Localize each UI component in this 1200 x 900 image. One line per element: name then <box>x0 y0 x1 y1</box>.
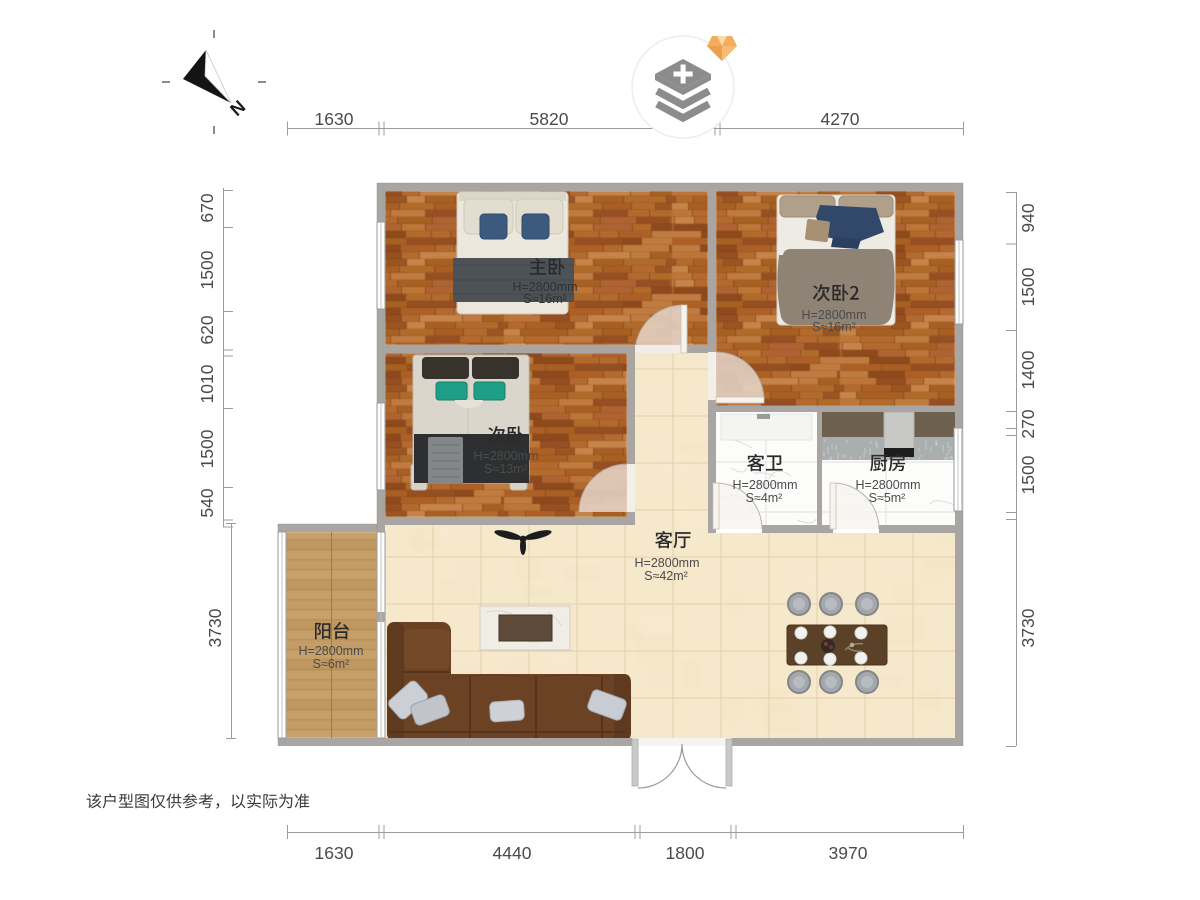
svg-text:S≈4m²: S≈4m² <box>746 491 783 505</box>
svg-text:4270: 4270 <box>821 109 860 129</box>
svg-text:4440: 4440 <box>493 843 532 863</box>
svg-text:H=2800mm: H=2800mm <box>474 449 539 463</box>
svg-text:H=2800mm: H=2800mm <box>856 478 921 492</box>
svg-text:1010: 1010 <box>197 364 217 403</box>
svg-text:S≈5m²: S≈5m² <box>869 491 906 505</box>
svg-text:670: 670 <box>197 193 217 222</box>
svg-text:1630: 1630 <box>315 109 354 129</box>
svg-text:270: 270 <box>1018 409 1038 438</box>
svg-text:3730: 3730 <box>205 608 225 647</box>
svg-text:H=2800mm: H=2800mm <box>635 556 700 570</box>
svg-text:540: 540 <box>197 488 217 517</box>
svg-text:S≈16m²: S≈16m² <box>523 292 567 306</box>
svg-text:1630: 1630 <box>315 843 354 863</box>
svg-text:3970: 3970 <box>829 843 868 863</box>
svg-text:3730: 3730 <box>1018 608 1038 647</box>
svg-text:H=2800mm: H=2800mm <box>299 644 364 658</box>
svg-text:H=2800mm: H=2800mm <box>733 478 798 492</box>
svg-text:1400: 1400 <box>1018 350 1038 389</box>
svg-text:620: 620 <box>197 315 217 344</box>
svg-text:S≈13m²: S≈13m² <box>484 462 528 476</box>
svg-text:S≈6m²: S≈6m² <box>313 657 350 671</box>
svg-text:5820: 5820 <box>530 109 569 129</box>
svg-text:1500: 1500 <box>197 429 217 468</box>
svg-text:1500: 1500 <box>1018 455 1038 494</box>
svg-text:1800: 1800 <box>666 843 705 863</box>
svg-text:S≈42m²: S≈42m² <box>644 569 688 583</box>
svg-text:940: 940 <box>1018 203 1038 232</box>
svg-text:1500: 1500 <box>1018 267 1038 306</box>
svg-text:S≈16m²: S≈16m² <box>812 320 856 334</box>
svg-text:1500: 1500 <box>197 250 217 289</box>
